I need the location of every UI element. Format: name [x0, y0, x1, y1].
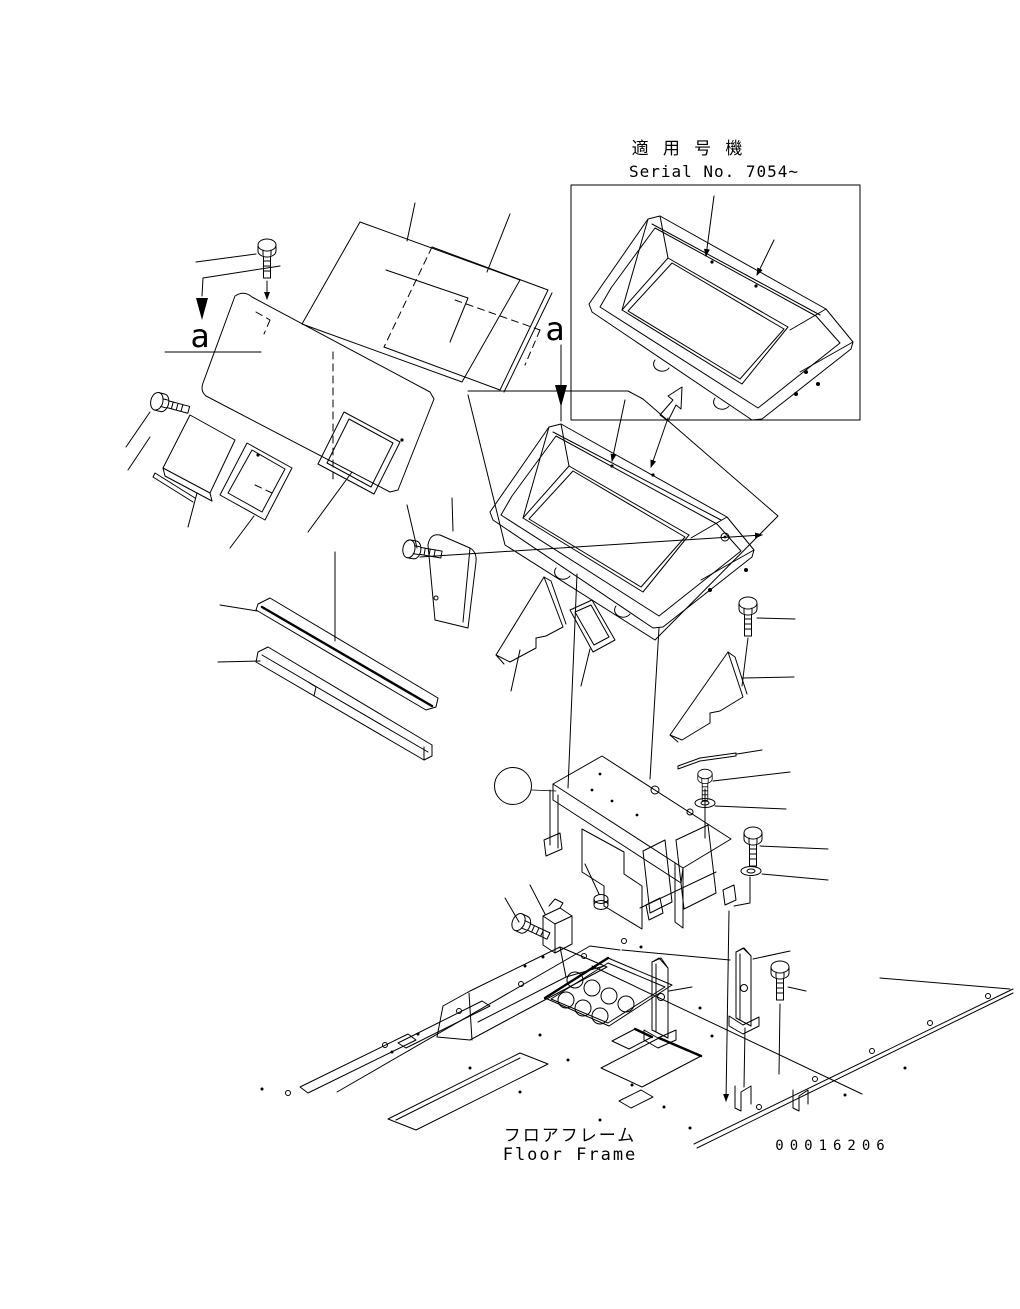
bolt-icon [149, 391, 191, 418]
hood-cover-main [490, 424, 754, 628]
bolt-icon [739, 597, 757, 636]
underlay-sheet [468, 391, 778, 640]
serial-no-label: Serial No. 7054~ [629, 162, 799, 181]
drawing-number: 00016206 [775, 1138, 890, 1154]
applicable-machines-label: 適 用 号 機 [632, 139, 745, 159]
trim-strips [256, 598, 438, 760]
parts-diagram-page: 適 用 号 機 Serial No. 7054~ a a フロアフレーム Flo… [0, 0, 1020, 1309]
mat-sheets [302, 222, 552, 392]
section-mark-a-right: a [545, 310, 564, 348]
labels: 適 用 号 機 Serial No. 7054~ a a フロアフレーム Flo… [190, 139, 890, 1165]
exploded-parts-drawing: 適 用 号 機 Serial No. 7054~ a a フロアフレーム Flo… [0, 0, 1020, 1309]
bolt-icon [744, 827, 762, 866]
direction-up-arrow-icon [660, 387, 682, 421]
floor-frame-label-en: Floor Frame [503, 1145, 638, 1165]
section-arrow-right [555, 345, 567, 421]
support-post [729, 948, 759, 1034]
washer-icon [741, 867, 761, 876]
leader-lines [126, 196, 828, 1101]
section-mark-a-left: a [190, 317, 209, 355]
small-plates [153, 415, 292, 520]
bolt-icon [401, 539, 443, 563]
callout-balloon-1[interactable]: 1 [495, 768, 557, 805]
bolt-icon [258, 239, 276, 278]
duct-cover [544, 756, 736, 929]
left-cover-panel [202, 293, 434, 494]
bolt-icon [771, 961, 789, 1000]
balloon-number[interactable]: 1 [507, 776, 518, 798]
small-hardware [543, 895, 608, 954]
hood-cover-boxed [589, 216, 853, 420]
floor-frame-label-jp: フロアフレーム [504, 1126, 637, 1146]
section-arrow-left [196, 278, 208, 320]
floor-frame [261, 939, 1014, 1149]
serial-spec-box [571, 185, 860, 421]
